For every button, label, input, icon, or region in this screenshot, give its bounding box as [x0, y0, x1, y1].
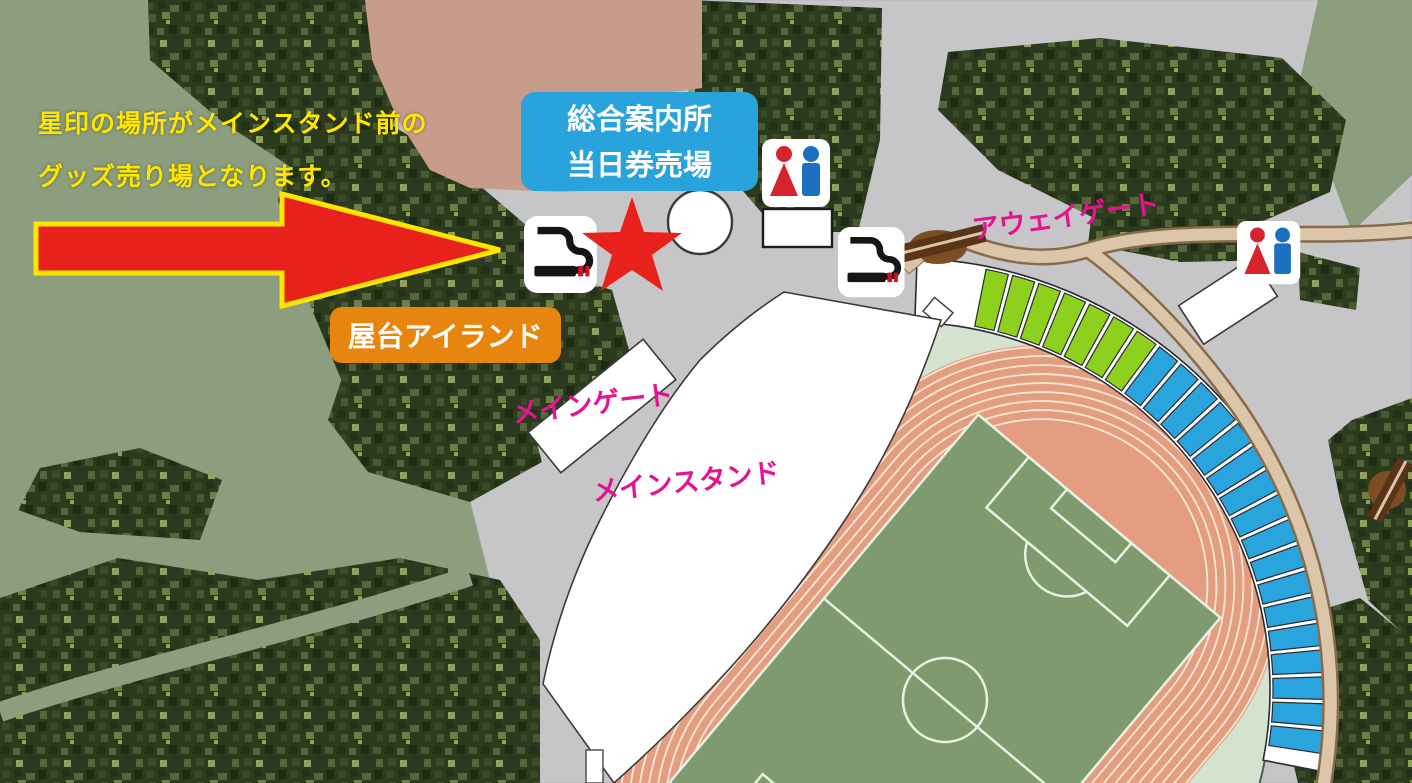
smoking-icon	[524, 216, 597, 293]
ticket-office-label: 当日券売場	[521, 142, 758, 188]
annotation-line-2: グッズ売り場となります。	[38, 157, 347, 193]
smoking-icon	[838, 227, 905, 297]
circle-marker	[668, 190, 732, 254]
annotation-line-1: 星印の場所がメインスタンド前の	[38, 104, 428, 140]
stand-strip	[586, 750, 603, 783]
info-center-label: 総合案内所	[521, 96, 758, 142]
restroom-icon	[762, 139, 830, 207]
booth-rect	[763, 209, 832, 247]
stadium-map: 星印の場所がメインスタンド前の グッズ売り場となります。 総合案内所 当日券売場…	[0, 0, 1412, 783]
restroom-icon	[1237, 221, 1300, 284]
yatai-island-label: 屋台アイランド	[330, 307, 561, 363]
info-ticket-box: 総合案内所 当日券売場	[521, 92, 758, 191]
